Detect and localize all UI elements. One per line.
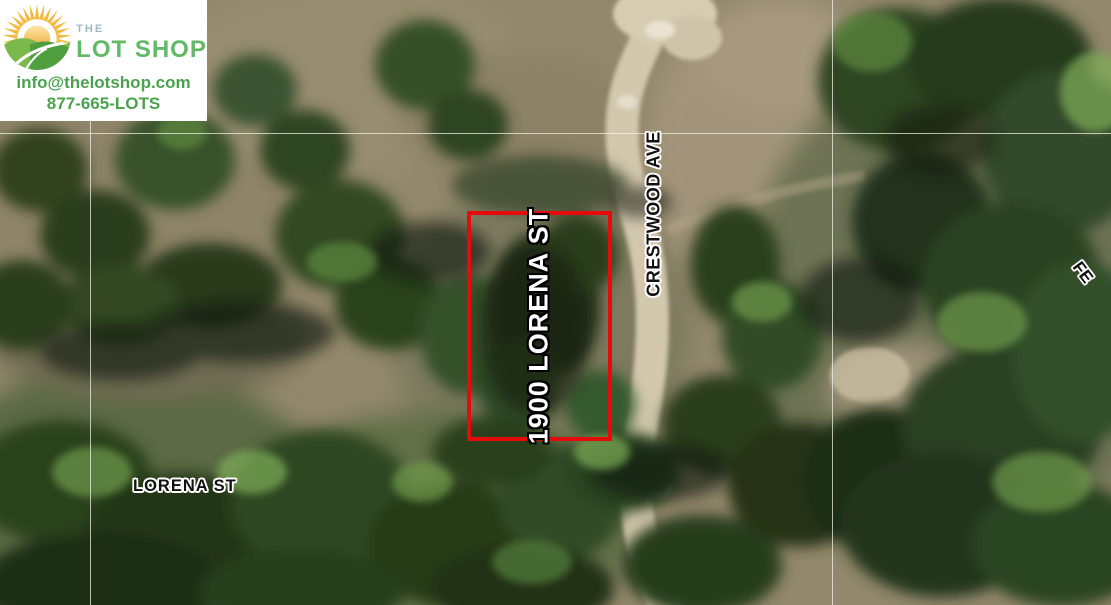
contact-email: info@thelotshop.com [16, 73, 190, 93]
brand-wordmark: THE LOT SHOP [76, 9, 207, 64]
brand-wordmark-the: THE [76, 23, 207, 35]
contact-phone: 877-665-LOTS [47, 94, 160, 114]
gridline-horizontal [0, 133, 1111, 134]
street-label-crestwood: CRESTWOOD AVE [644, 131, 665, 297]
logo-box: THE LOT SHOP info@thelotshop.com 877-665… [0, 0, 207, 121]
lot-shop-sun-icon [2, 1, 72, 71]
brand-wordmark-name: LOT SHOP [76, 36, 207, 64]
gridline-vertical-right [832, 0, 833, 605]
listing-image: CRESTWOOD AVE LORENA ST FE 1900 LORENA S… [0, 0, 1111, 605]
street-label-lorena: LORENA ST [133, 477, 237, 496]
brand-logo: THE LOT SHOP [0, 1, 207, 71]
parcel-address-label: 1900 LORENA ST [524, 208, 555, 445]
